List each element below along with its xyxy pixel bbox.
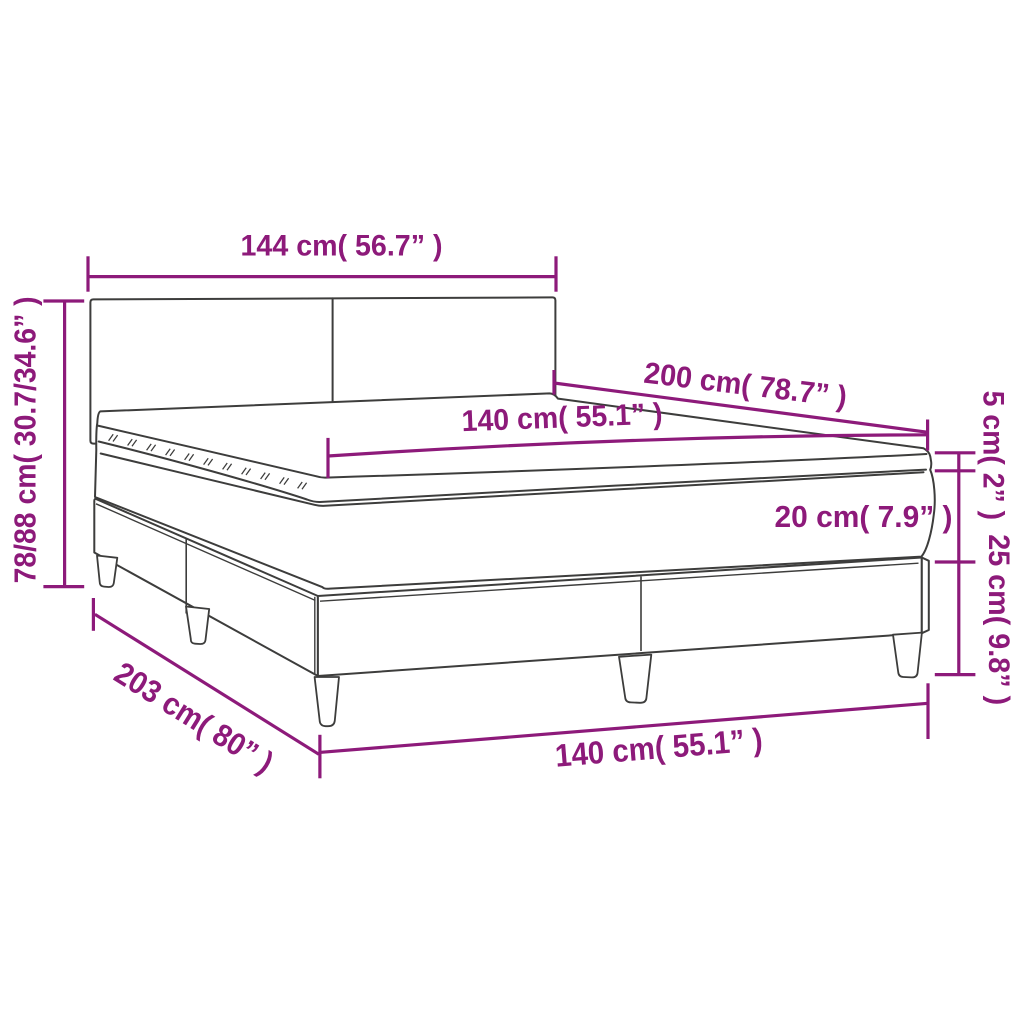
- svg-text:78/88 cm( 30.7/34.6” ): 78/88 cm( 30.7/34.6” ): [8, 296, 42, 583]
- svg-text:25 cm( 9.8” ): 25 cm( 9.8” ): [982, 534, 1015, 705]
- svg-text:20 cm( 7.9” ): 20 cm( 7.9” ): [775, 500, 953, 534]
- svg-text:5 cm( 2” ): 5 cm( 2” ): [977, 391, 1010, 520]
- svg-text:144 cm( 56.7” ): 144 cm( 56.7” ): [241, 230, 443, 263]
